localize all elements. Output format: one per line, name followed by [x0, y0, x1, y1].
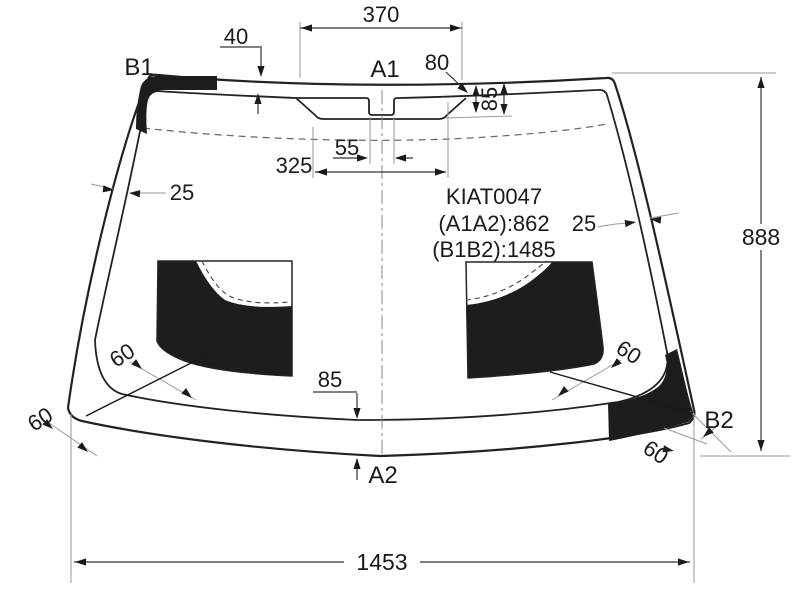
measure-a1a2: (A1A2):862 [438, 211, 549, 236]
dim-1453: 1453 [356, 549, 407, 575]
left-crossing-leader [86, 357, 203, 416]
point-label-a1: A1 [370, 56, 399, 83]
frit-inner-boundary [95, 90, 668, 420]
diagram-canvas: 370 40 80 85 55 325 25 25 888 85 60 60 6… [0, 0, 800, 600]
dim-80: 80 [425, 50, 449, 75]
point-label-b2: B2 [704, 407, 733, 434]
dim-85-top: 85 [477, 87, 502, 111]
dim-85-bottom: 85 [318, 367, 342, 392]
dim-25-right: 25 [572, 211, 596, 236]
dim-55: 55 [335, 135, 359, 160]
right-frit-patch-fill [466, 262, 603, 378]
dim-325: 325 [276, 153, 313, 178]
dim-25-left: 25 [170, 180, 194, 205]
inner-edge [95, 90, 668, 420]
left-frit-patch-fill [157, 261, 292, 376]
point-label-b1: B1 [124, 54, 153, 81]
measure-b1b2: (B1B2):1485 [432, 237, 556, 262]
pointer-lines [86, 357, 693, 416]
windshield-diagram: 370 40 80 85 55 325 25 25 888 85 60 60 6… [0, 0, 800, 600]
shade-band-dashed-line [143, 124, 607, 140]
b1-corner-band [136, 76, 217, 134]
dim-40: 40 [224, 24, 248, 49]
dim-60-left-mid: 60 [105, 338, 139, 372]
point-label-a2: A2 [368, 462, 397, 489]
dim-370: 370 [363, 2, 400, 27]
part-code: KIAT0047 [446, 184, 542, 209]
dim-60-left-corner: 60 [23, 402, 57, 436]
dim-888: 888 [742, 224, 780, 250]
dim-60-right-corner: 60 [639, 435, 673, 469]
